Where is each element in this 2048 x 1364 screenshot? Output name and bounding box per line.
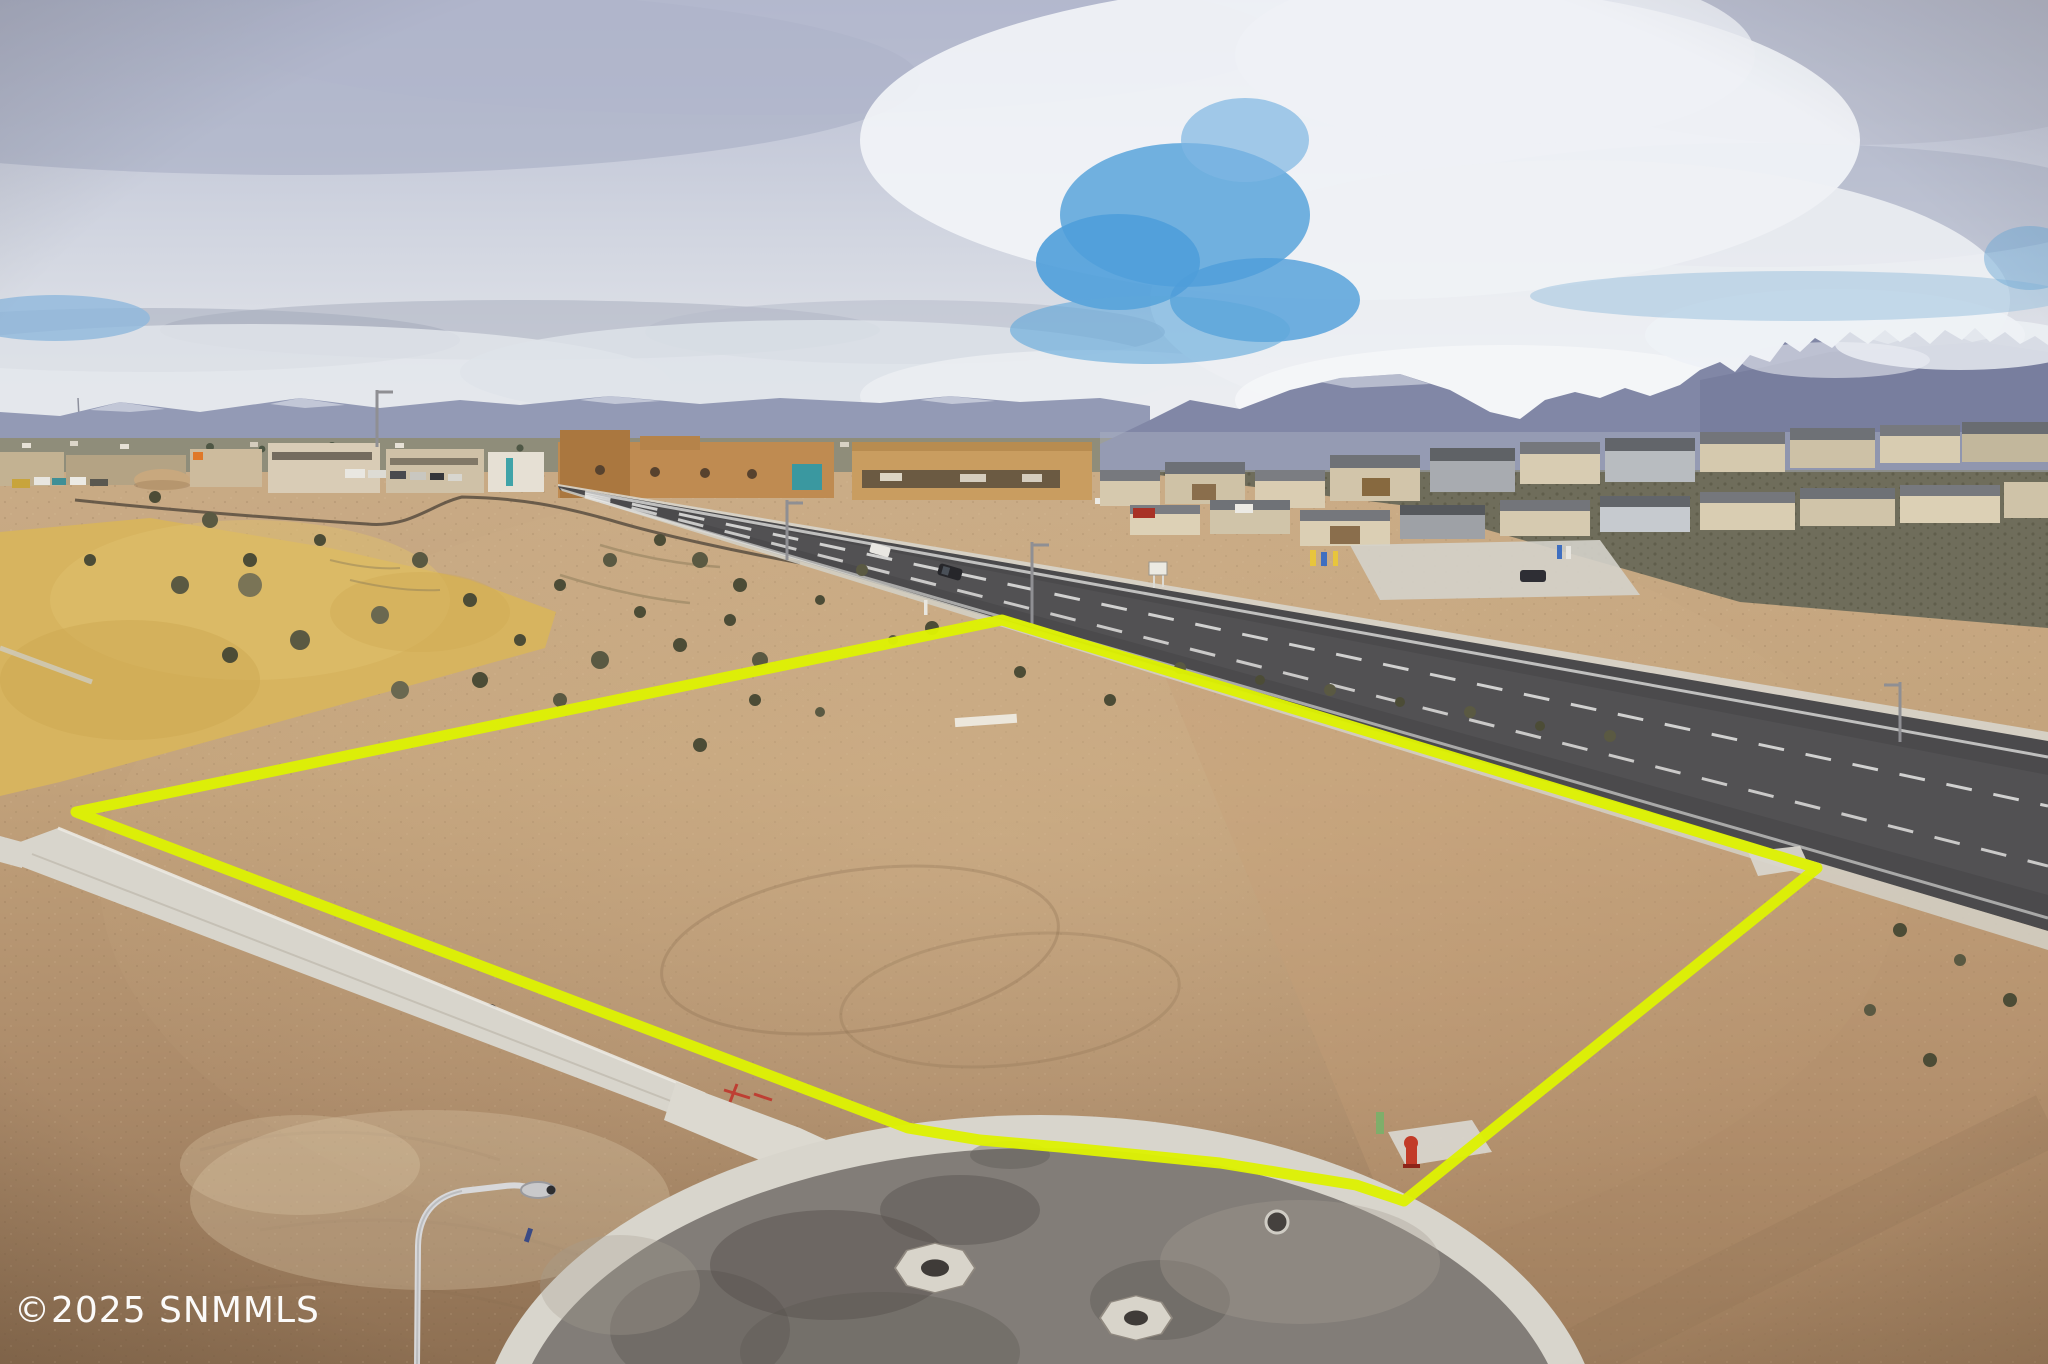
- listing-photo: ©2025 SNMMLS: [0, 0, 2048, 1364]
- aerial-photo-canvas: ©2025 SNMMLS: [0, 0, 2048, 1364]
- vignette: [0, 0, 2048, 1364]
- watermark: ©2025 SNMMLS: [14, 1290, 320, 1331]
